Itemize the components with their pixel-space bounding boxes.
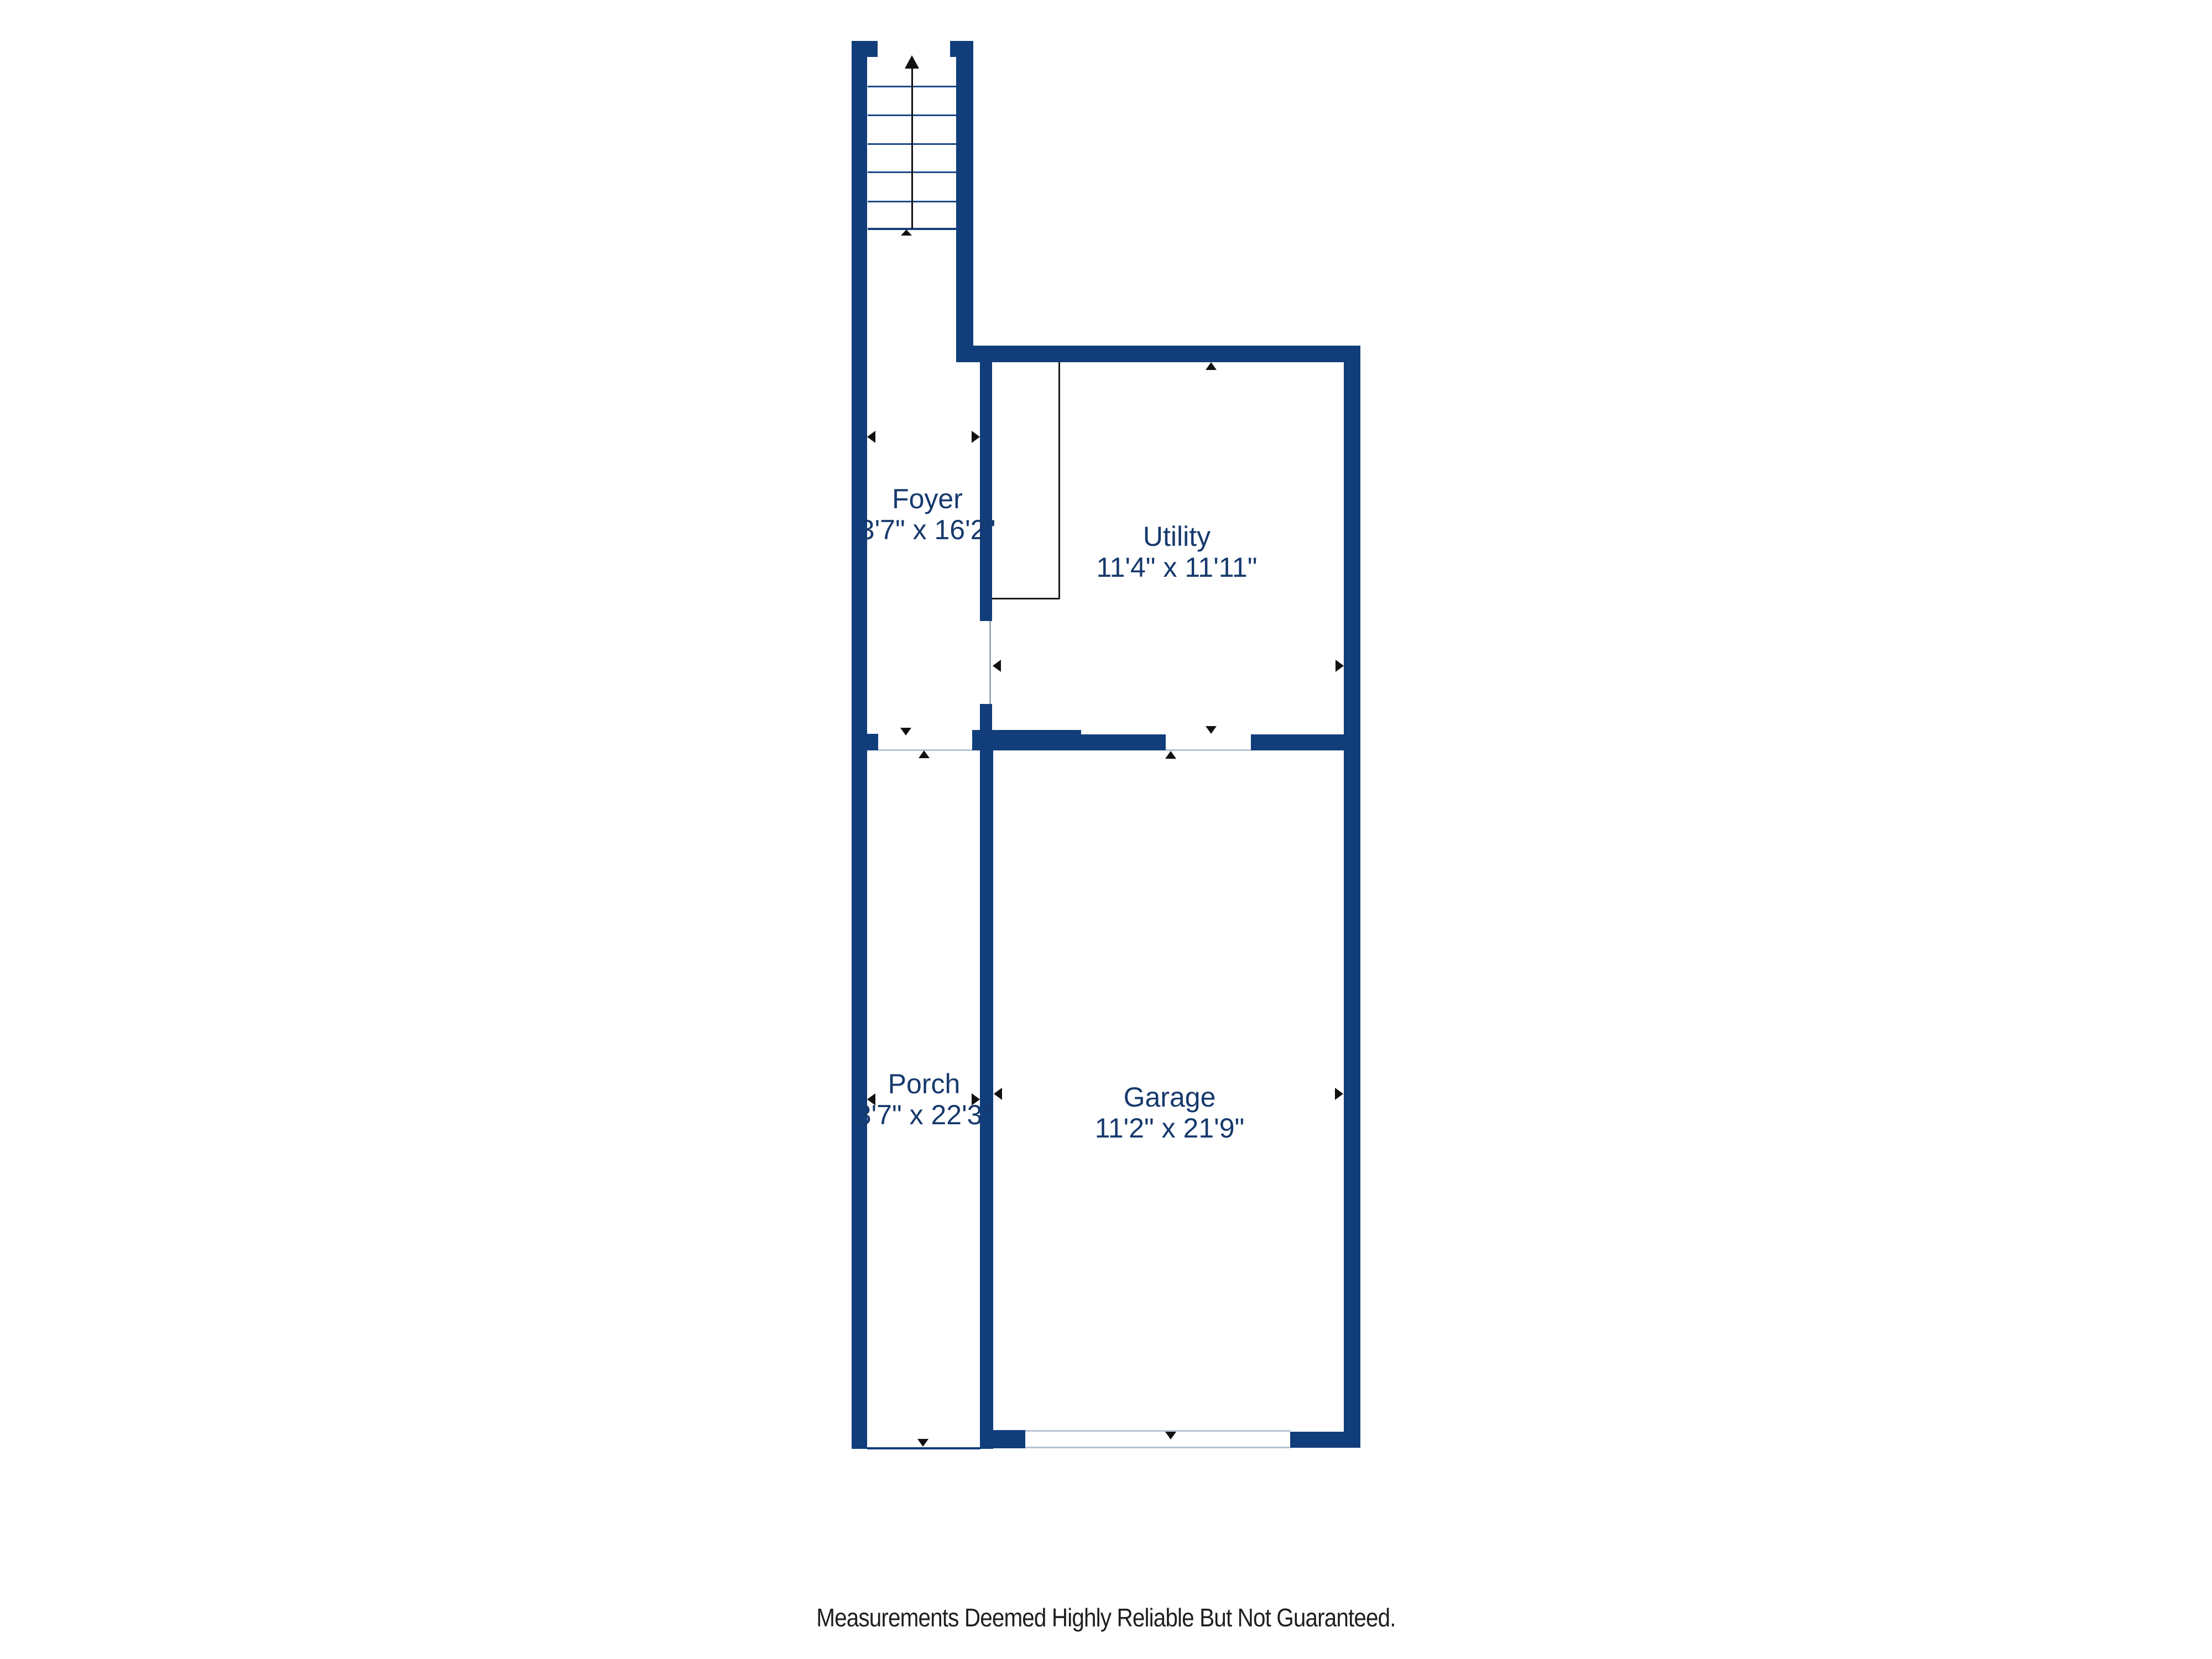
wall-divider-block: [972, 730, 1081, 750]
wall-garage-bottom-right: [1290, 1432, 1360, 1448]
room-label-foyer: Foyer 3'7" x 16'2": [859, 483, 995, 545]
porch-dim-arrow-top-icon: [919, 750, 930, 758]
room-dimensions: 11'2" x 21'9": [1095, 1113, 1245, 1144]
porch-dim-arrow-bottom-icon: [917, 1439, 928, 1447]
room-name: Garage: [1095, 1082, 1245, 1113]
stair-start-marker-icon: [901, 229, 912, 236]
utility-dim-arrow-top-icon: [1206, 362, 1217, 370]
wall-divider-right: [1251, 734, 1344, 750]
room-name: Porch: [856, 1068, 992, 1099]
wall-divider-mid: [1081, 734, 1166, 750]
utility-dim-arrow-right-icon: [1335, 660, 1344, 672]
porch-bottom-edge: [867, 1447, 980, 1449]
stair-direction-line: [911, 66, 913, 229]
closet-partition-horizontal: [992, 598, 1060, 599]
utility-garage-threshold: [1166, 749, 1251, 751]
garage-dim-arrow-left-icon: [994, 1088, 1002, 1100]
closet-partition-vertical: [1058, 362, 1060, 599]
room-dimensions: 3'7" x 22'3": [856, 1099, 992, 1130]
utility-dim-arrow-left-icon: [993, 660, 1001, 672]
measurements-disclaimer: Measurements Deemed Highly Reliable But …: [816, 1603, 1395, 1632]
wall-utility-top: [956, 346, 1360, 362]
stair-up-arrow-icon: [905, 55, 919, 69]
room-label-porch: Porch 3'7" x 22'3": [856, 1068, 992, 1130]
wall-right-exterior: [1344, 346, 1360, 1448]
garage-dim-arrow-bottom-icon: [1165, 1432, 1176, 1439]
wall-divider-stub-left: [867, 734, 878, 750]
foyer-utility-door-line: [989, 621, 991, 704]
floor-plan: Foyer 3'7" x 16'2" Utility 11'4" x 11'11…: [0, 0, 2212, 1659]
room-name: Utility: [1097, 521, 1258, 552]
garage-dim-arrow-top-icon: [1165, 751, 1176, 759]
foyer-dim-arrow-right-icon: [972, 431, 980, 443]
garage-dim-arrow-right-icon: [1335, 1088, 1343, 1100]
floor-plan-page: Foyer 3'7" x 16'2" Utility 11'4" x 11'11…: [0, 0, 2212, 1659]
foyer-dim-arrow-bottom-icon: [900, 728, 911, 735]
room-label-garage: Garage 11'2" x 21'9": [1095, 1082, 1245, 1144]
garage-door-top-line: [1025, 1430, 1290, 1432]
wall-left-exterior: [852, 41, 867, 1449]
foyer-dim-arrow-left-icon: [867, 431, 875, 443]
room-dimensions: 3'7" x 16'2": [859, 514, 995, 545]
utility-dim-arrow-bottom-icon: [1206, 726, 1217, 734]
room-label-utility: Utility 11'4" x 11'11": [1097, 521, 1258, 583]
wall-stair-right: [956, 41, 973, 362]
room-name: Foyer: [859, 483, 995, 514]
wall-top-cap-left: [852, 41, 878, 57]
garage-door-bottom-line: [1025, 1447, 1290, 1448]
room-dimensions: 11'4" x 11'11": [1097, 552, 1258, 583]
wall-garage-bottom-left: [980, 1430, 1025, 1448]
